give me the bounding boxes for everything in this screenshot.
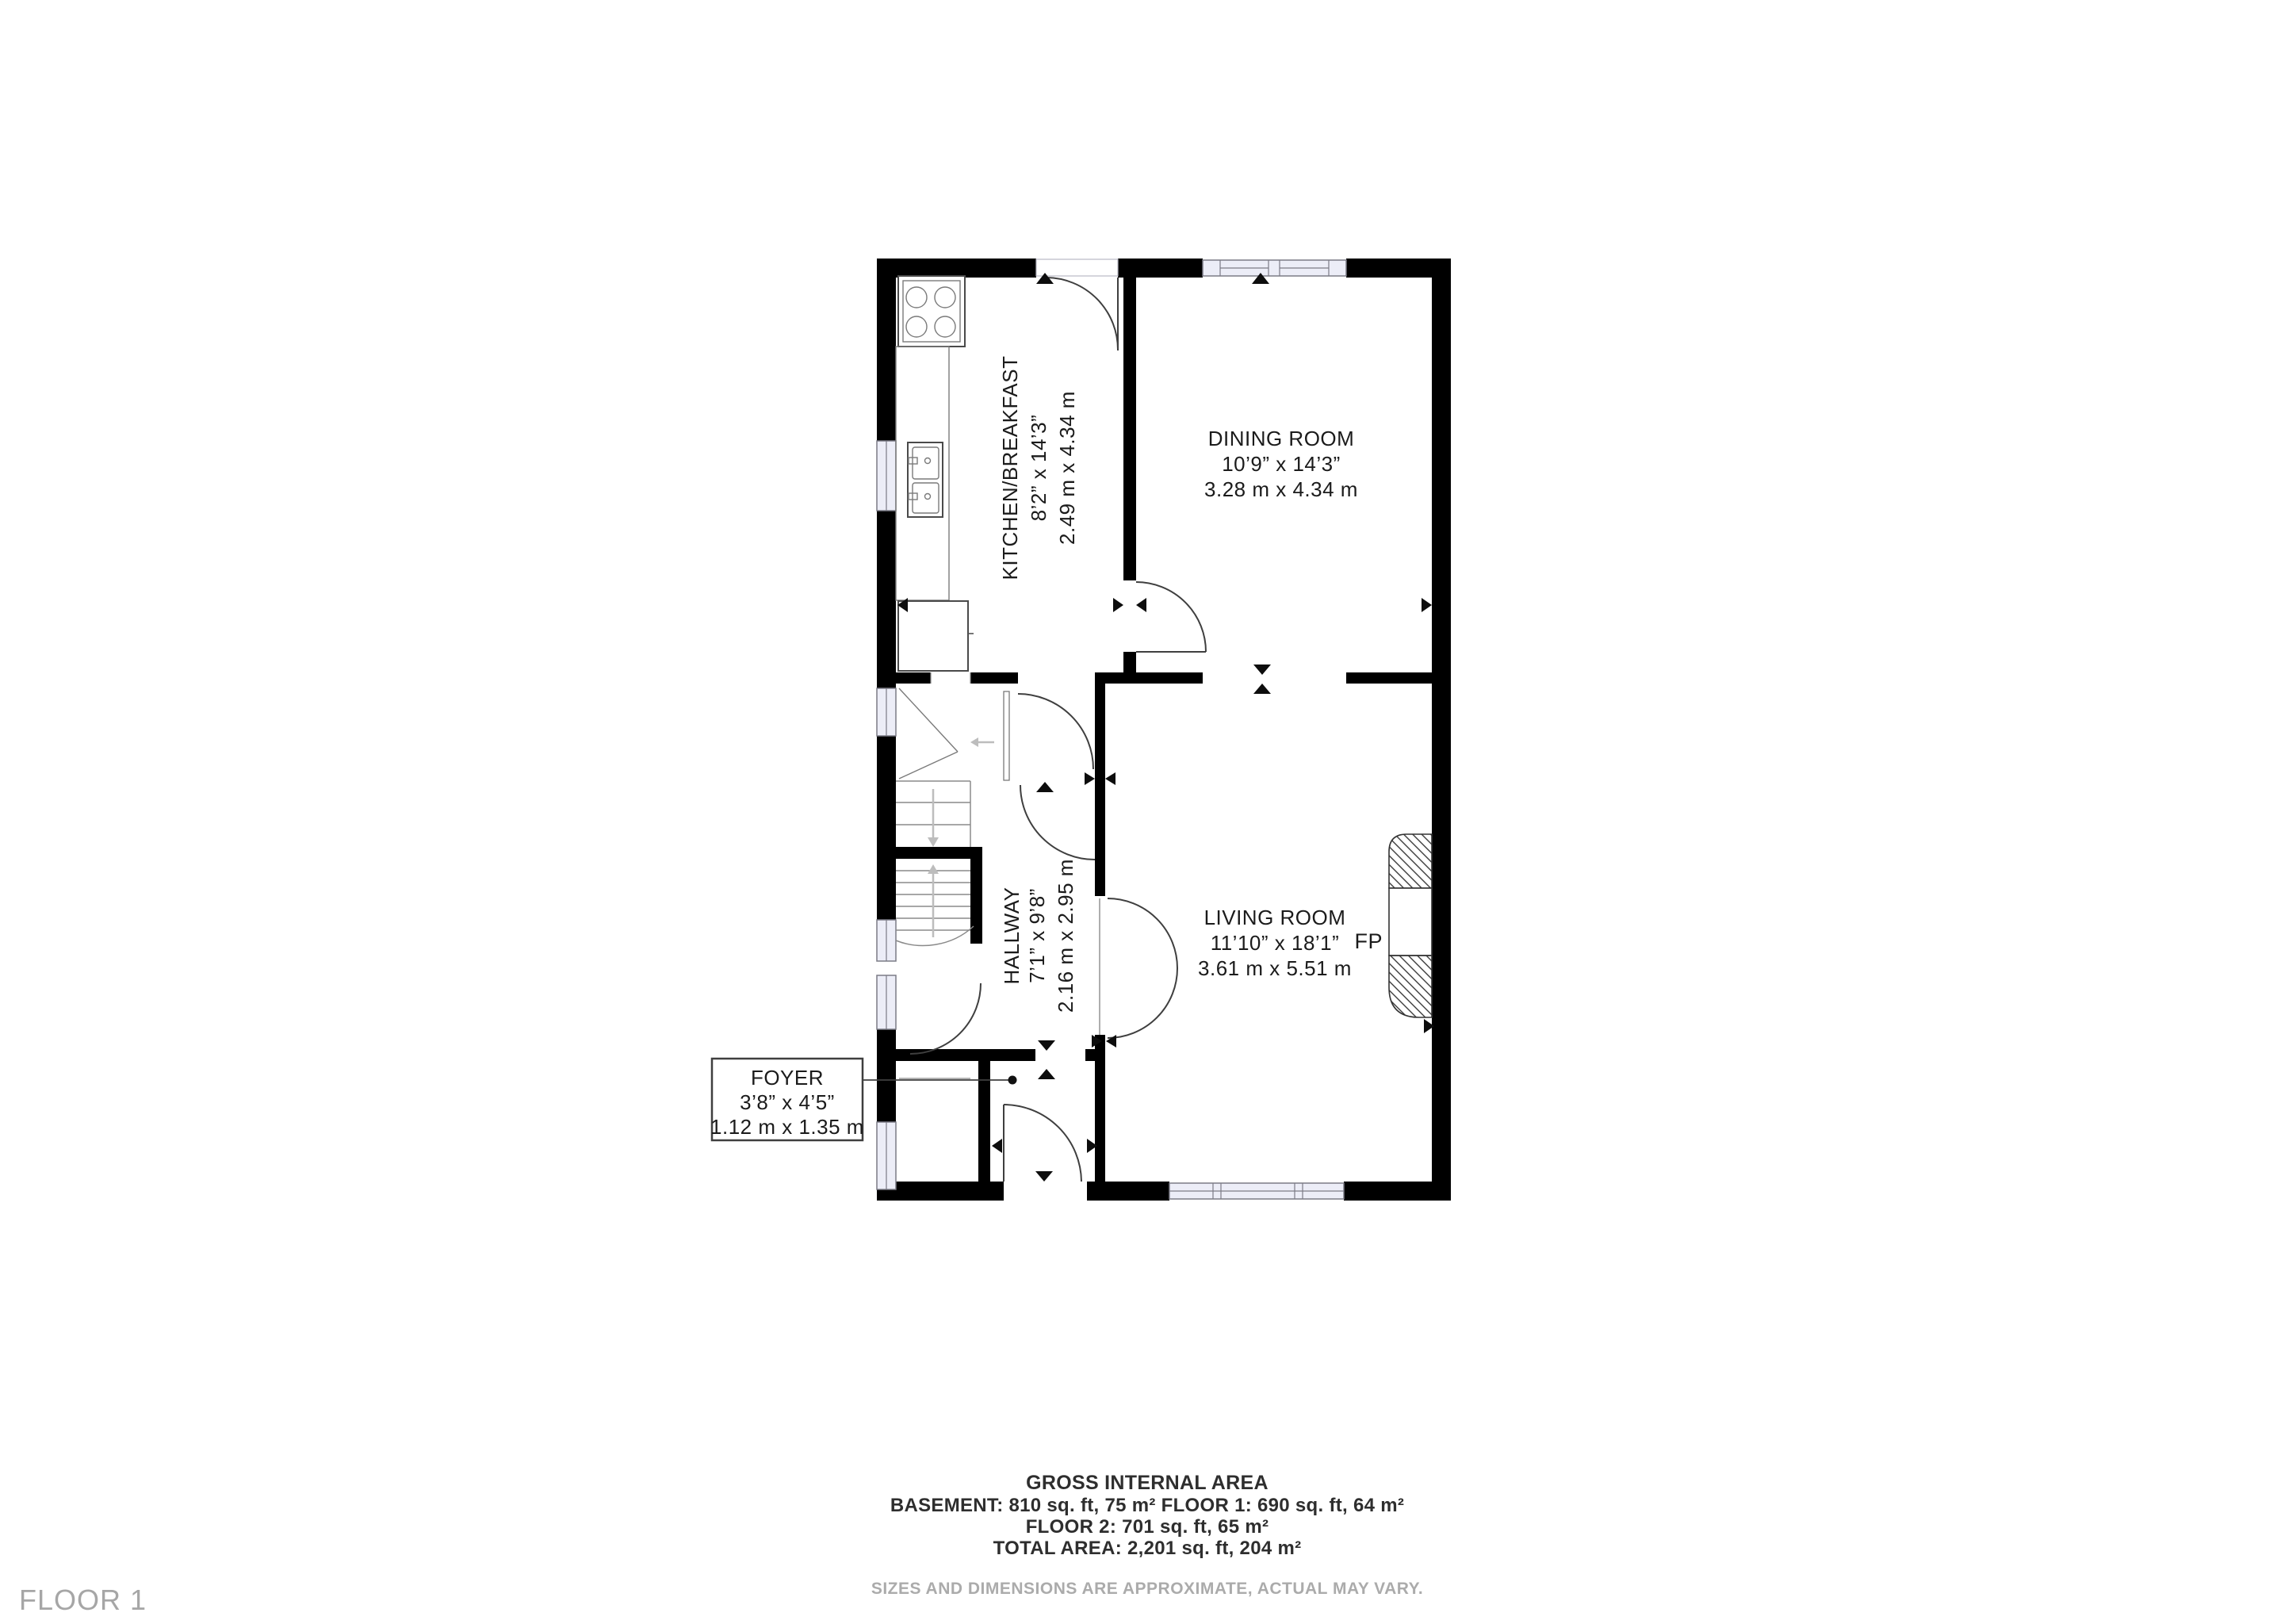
marker-living-wall-upper-right: [1105, 772, 1115, 785]
kitchen-label: KITCHEN/BREAKFAST 8’2” x 14’3” 2.49 m x …: [998, 356, 1079, 580]
foyer-leader-dot: [1008, 1076, 1017, 1085]
marker-kitchen-dining-right: [1136, 598, 1146, 612]
marker-living-wall-lower-right: [1106, 1035, 1116, 1048]
living-room-size-imperial: 11’10” x 18’1”: [1211, 931, 1340, 955]
hallway-size-metric: 2.16 m x 2.95 m: [1054, 859, 1077, 1013]
stairs-up-arrow: [928, 864, 939, 874]
living-room-name: LIVING ROOM: [1204, 906, 1346, 929]
living-room-label: LIVING ROOM 11’10” x 18’1” 3.61 m x 5.51…: [1198, 906, 1352, 980]
foyer-size-imperial: 3’8” x 4’5”: [740, 1090, 835, 1114]
dining-room-label: DINING ROOM 10’9” x 14’3” 3.28 m x 4.34 …: [1204, 427, 1358, 501]
hallway-name: HALLWAY: [1000, 887, 1024, 985]
foyer-name: FOYER: [751, 1066, 824, 1090]
floor-plan-page: DINING ROOM 10’9” x 14’3” 3.28 m x 4.34 …: [0, 0, 2296, 1624]
living-room-double-door: [1100, 898, 1177, 1038]
footer-disclaimer: SIZES AND DIMENSIONS ARE APPROXIMATE, AC…: [871, 1580, 1423, 1598]
marker-hallway: [1036, 782, 1054, 792]
stairs-lower-flight: [896, 864, 974, 945]
fireplace-icon: [1389, 834, 1432, 1017]
dining-room-name: DINING ROOM: [1208, 427, 1355, 450]
footer-line-total: TOTAL AREA: 2,201 sq. ft, 204 m²: [993, 1538, 1302, 1559]
interior-walls: [896, 278, 1432, 1182]
kitchen-exterior-door-opening: [1036, 259, 1118, 276]
foyer-callout: FOYER 3’8” x 4’5” 1.12 m x 1.35 m: [710, 1059, 1016, 1140]
footer-area-summary: GROSS INTERNAL AREA BASEMENT: 810 sq. ft…: [871, 1472, 1423, 1598]
kitchen-exterior-door: [1047, 278, 1118, 350]
fireplace-label: FP: [1354, 929, 1383, 953]
marker-kitchen-dining-left: [1113, 598, 1123, 612]
footer-title: GROSS INTERNAL AREA: [1026, 1472, 1269, 1494]
marker-living-wall-upper-left: [1085, 772, 1095, 785]
floor-number-label: FLOOR 1: [19, 1584, 147, 1616]
kitchen-size-metric: 2.49 m x 4.34 m: [1055, 391, 1079, 545]
sink-icon: [908, 442, 943, 517]
marker-foyer-opening-top: [1038, 1040, 1055, 1051]
stove-icon: [898, 276, 965, 347]
footer-line-basement-floor1: BASEMENT: 810 sq. ft, 75 m² FLOOR 1: 690…: [890, 1495, 1404, 1516]
kitchen-size-imperial: 8’2” x 14’3”: [1027, 415, 1050, 522]
foyer-size-metric: 1.12 m x 1.35 m: [710, 1115, 864, 1139]
kitchen-name: KITCHEN/BREAKFAST: [998, 356, 1022, 580]
dining-room-size-metric: 3.28 m x 4.34 m: [1204, 477, 1358, 501]
footer-line-floor2: FLOOR 2: 701 sq. ft, 65 m²: [1026, 1516, 1269, 1538]
foyer-closet-door: [910, 983, 981, 1054]
dining-room-size-imperial: 10’9” x 14’3”: [1222, 452, 1341, 476]
refrigerator-icon: [898, 601, 974, 671]
kitchen-dining-door: [1136, 582, 1206, 652]
hallway-label: HALLWAY 7’1” x 9’8” 2.16 m x 2.95 m: [1000, 859, 1077, 1013]
stairs-upper-flight: [896, 781, 970, 847]
marker-front-door: [1035, 1171, 1053, 1182]
front-entry-door: [1004, 1105, 1081, 1182]
marker-dining-right-wall: [1422, 598, 1432, 612]
marker-foyer-opening-bottom: [1038, 1069, 1055, 1079]
living-room-size-metric: 3.61 m x 5.51 m: [1198, 956, 1352, 980]
floor-plan-svg: DINING ROOM 10’9” x 14’3” 3.28 m x 4.34 …: [0, 0, 2296, 1624]
marker-dining-living-top: [1253, 665, 1271, 675]
stairs-down-arrow: [928, 837, 939, 847]
hallway-size-imperial: 7’1” x 9’8”: [1025, 888, 1049, 983]
hallway-top-door: [1004, 691, 1093, 780]
opening-markers: [897, 273, 1434, 1182]
hallway-basement-door: [1020, 785, 1095, 860]
marker-front-width-left: [992, 1139, 1002, 1153]
marker-dining-living-bottom: [1253, 684, 1271, 694]
